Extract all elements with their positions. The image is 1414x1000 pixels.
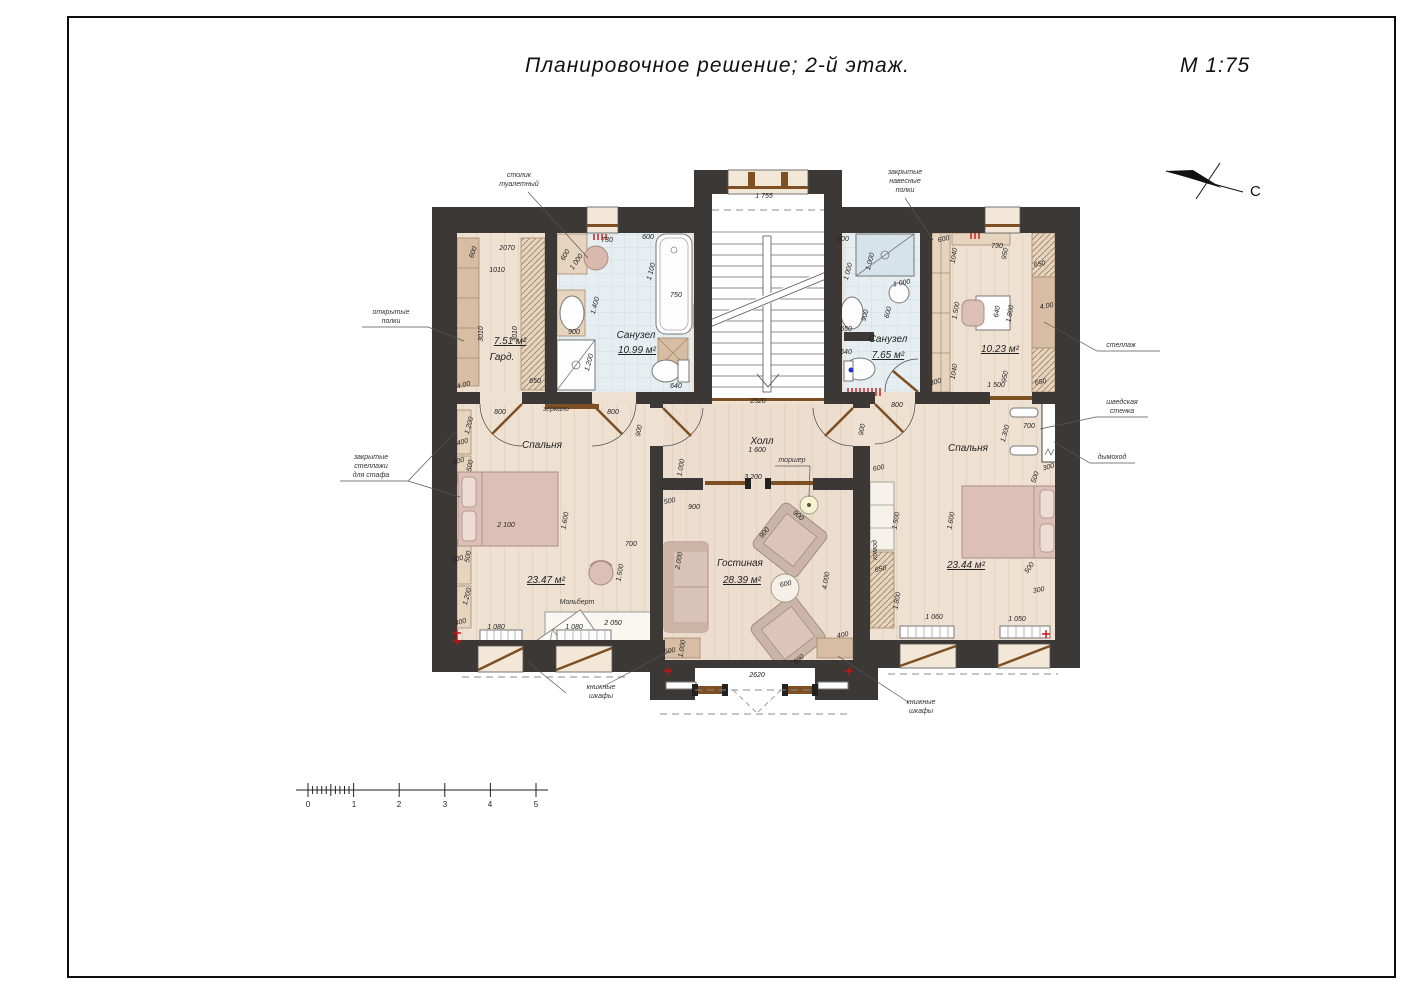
room-label: Санузел [869, 334, 908, 345]
dim-label: 1010 [489, 267, 505, 274]
ann-label: стенка [1110, 408, 1134, 415]
dim-label: 1 755 [755, 193, 773, 200]
room-label: 23.44 м² [946, 560, 986, 571]
room-label: Санузел [617, 330, 656, 341]
ann-label: дымоход [1098, 453, 1127, 461]
ann-label: закрытые [887, 169, 922, 176]
dim-label: 700 [1023, 423, 1035, 430]
dim-label: 2520 [749, 398, 766, 405]
ann-label: шведская [1106, 398, 1138, 406]
room-label: 7.65 м² [872, 350, 905, 361]
dim-label: 1 080 [565, 624, 583, 631]
ann-label: торшер [778, 457, 805, 464]
ann-label: стеллаж [1106, 342, 1137, 349]
room-label: Холл [749, 436, 773, 447]
dim-label: 650 [840, 326, 852, 333]
room-label: 7.51 м² [494, 336, 527, 347]
scale-label: 5 [534, 800, 539, 809]
scale-label: 1 [352, 800, 357, 809]
dim-label: 1 080 [487, 624, 505, 631]
ann-label: зеркало [542, 406, 569, 413]
ann-label: книжные [587, 684, 616, 691]
scale-label: 3 [443, 800, 448, 809]
scale-note: М 1:75 [1180, 54, 1250, 77]
dim-label: 2 100 [496, 522, 515, 529]
ann-label: полки [896, 187, 915, 194]
dim-label: 3 200 [744, 474, 762, 481]
dim-label: 1 050 [1008, 616, 1026, 623]
ann-label: Мольберт [560, 598, 595, 606]
dim-label: 700 [625, 541, 637, 548]
scale-label: 0 [306, 800, 311, 809]
floor-plan-svg: Планировочное решение; 2-й этаж. М 1:75 … [0, 0, 1414, 1000]
ann-label: книжные [907, 699, 936, 706]
dim-label: 800 [607, 409, 619, 416]
dim-label: 900 [688, 504, 700, 511]
dim-label: 640 [840, 349, 852, 356]
dim-label: 600 [837, 236, 849, 243]
dim-label: 2 050 [603, 620, 622, 627]
ann-label: столик [507, 172, 532, 179]
dim-label: 600 [642, 234, 654, 241]
dim-label: 1 600 [748, 447, 766, 454]
room-label: 28.39 м² [722, 575, 762, 586]
ann-label: открытые [373, 309, 410, 316]
ann-label: навесные [889, 178, 921, 185]
ann-label: стеллажи [354, 463, 388, 470]
dim-label: 3010 [512, 326, 519, 342]
ann-label: полки [382, 318, 401, 325]
dim-label: 2070 [498, 245, 515, 252]
room-label: 23.47 м² [526, 575, 566, 586]
dim-label: 3010 [478, 326, 485, 342]
ann-label: шкафы [589, 693, 614, 700]
page-title: Планировочное решение; 2-й этаж. [525, 54, 910, 77]
dim-label: 650 [529, 378, 541, 385]
scale-bar [296, 783, 548, 797]
room-label: Спальня [522, 440, 563, 451]
north-label: С [1250, 183, 1261, 200]
dim-label: 730 [991, 243, 1003, 250]
dim-label: 750 [670, 292, 682, 299]
title-block: Планировочное решение; 2-й этаж. М 1:75 [525, 54, 1250, 77]
room-label: 10.99 м² [618, 345, 657, 356]
ann-label: для стафа [353, 471, 389, 479]
dim-label: 2620 [748, 672, 765, 679]
drawing-sheet: Планировочное решение; 2-й этаж. М 1:75 … [0, 0, 1414, 1000]
dim-label: 730 [601, 237, 613, 244]
ann-label: туалетный [499, 180, 539, 188]
dim-label: 640 [670, 383, 682, 390]
ann-label: шкафы [909, 708, 934, 715]
scale-label: 4 [488, 800, 493, 809]
north-arrow-icon: С [1166, 163, 1261, 200]
dim-label: 800 [494, 409, 506, 416]
room-label: Спальня [948, 443, 989, 454]
dim-label: 800 [891, 402, 903, 409]
ann-label: закрытые [353, 454, 388, 461]
ann-label: комод [871, 540, 879, 560]
scale-label: 2 [397, 800, 402, 809]
dim-label: 1 060 [925, 614, 943, 621]
room-label: 10.23 м² [981, 344, 1020, 355]
room-label: Гард. [490, 352, 515, 363]
dim-label: 1 500 [987, 382, 1005, 389]
dim-label: 900 [568, 329, 580, 336]
room-label: Гостиная [717, 558, 763, 569]
